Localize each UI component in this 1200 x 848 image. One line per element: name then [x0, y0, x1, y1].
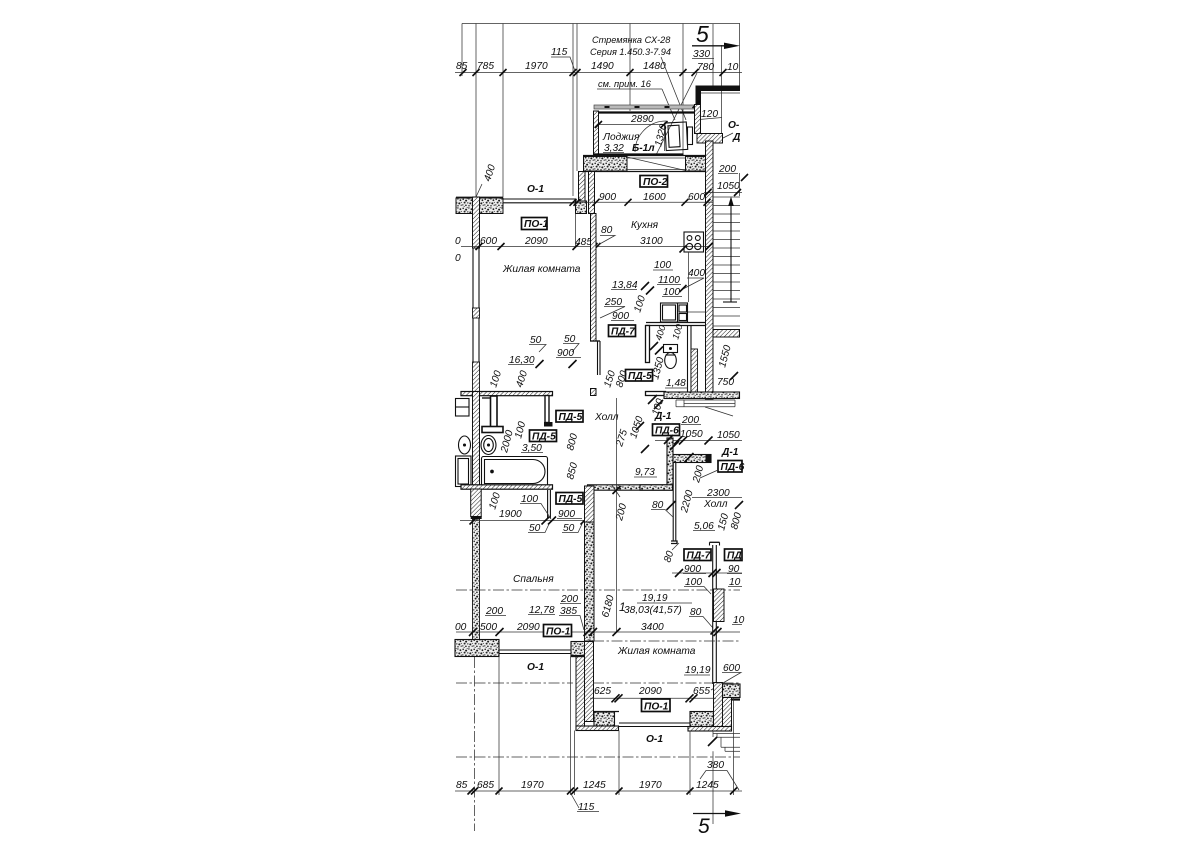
svg-text:ПД: ПД — [727, 551, 742, 562]
svg-text:625: 625 — [594, 686, 611, 697]
svg-text:1480: 1480 — [643, 61, 666, 72]
svg-text:ПД-5: ПД-5 — [559, 494, 583, 505]
svg-text:19,19: 19,19 — [685, 665, 711, 676]
svg-text:2090: 2090 — [524, 236, 548, 247]
svg-text:ПД-7: ПД-7 — [687, 551, 712, 562]
svg-text:100: 100 — [654, 260, 671, 271]
svg-text:Холл: Холл — [703, 499, 728, 510]
svg-text:19,19: 19,19 — [642, 593, 668, 604]
svg-text:ПО-2: ПО-2 — [643, 177, 668, 188]
svg-text:400: 400 — [688, 268, 705, 279]
svg-text:780: 780 — [697, 62, 714, 73]
svg-text:80: 80 — [601, 225, 613, 236]
svg-text:ПД-5: ПД-5 — [628, 371, 652, 382]
svg-text:ПО-1: ПО-1 — [644, 702, 669, 713]
svg-text:Серия 1.450.3-7.94: Серия 1.450.3-7.94 — [590, 47, 671, 57]
svg-text:5: 5 — [698, 815, 710, 838]
svg-text:О-1: О-1 — [527, 662, 544, 673]
svg-text:ПО-1: ПО-1 — [524, 219, 549, 230]
svg-text:1245: 1245 — [583, 780, 606, 791]
svg-text:Стремянка СХ-28: Стремянка СХ-28 — [592, 35, 671, 45]
svg-text:ПД-6: ПД-6 — [721, 462, 745, 473]
svg-text:1600: 1600 — [643, 192, 666, 203]
svg-text:1,48: 1,48 — [666, 378, 686, 389]
svg-text:2090: 2090 — [638, 686, 662, 697]
svg-text:1050: 1050 — [717, 430, 740, 441]
svg-text:Кухня: Кухня — [631, 220, 659, 231]
svg-text:0: 0 — [455, 236, 461, 247]
svg-text:0: 0 — [455, 253, 461, 264]
svg-text:115: 115 — [551, 47, 568, 58]
svg-text:ПД-7: ПД-7 — [611, 327, 636, 338]
svg-text:1490: 1490 — [591, 61, 614, 72]
svg-text:3100: 3100 — [640, 236, 663, 247]
svg-text:Жилая комната: Жилая комната — [617, 646, 696, 657]
svg-text:900: 900 — [599, 192, 616, 203]
svg-text:ПД-5: ПД-5 — [559, 412, 583, 423]
svg-text:1245: 1245 — [696, 780, 719, 791]
svg-text:1970: 1970 — [639, 780, 662, 791]
svg-text:2090: 2090 — [516, 622, 540, 633]
svg-text:10: 10 — [727, 62, 739, 73]
svg-text:00: 00 — [455, 622, 467, 633]
svg-text:1050: 1050 — [717, 181, 740, 192]
svg-text:Холл: Холл — [594, 412, 619, 423]
svg-text:485: 485 — [575, 237, 592, 248]
svg-text:О-1: О-1 — [527, 184, 544, 195]
svg-text:685: 685 — [477, 780, 494, 791]
svg-text:1970: 1970 — [521, 780, 544, 791]
svg-text:О-: О- — [728, 120, 740, 131]
svg-text:Д: Д — [732, 132, 741, 143]
svg-text:3400: 3400 — [641, 622, 664, 633]
svg-text:Жилая комната: Жилая комната — [502, 264, 581, 275]
svg-text:500: 500 — [480, 622, 497, 633]
svg-text:85: 85 — [456, 780, 468, 791]
svg-text:785: 785 — [477, 61, 494, 72]
svg-text:600: 600 — [688, 192, 705, 203]
svg-text:38,03(41,57): 38,03(41,57) — [624, 605, 682, 616]
svg-text:см. прим. 16: см. прим. 16 — [598, 79, 652, 89]
svg-text:Спальня: Спальня — [513, 574, 554, 585]
svg-text:1970: 1970 — [525, 61, 548, 72]
svg-text:ПО-1: ПО-1 — [546, 627, 571, 638]
svg-text:О-1: О-1 — [646, 734, 663, 745]
svg-text:ПД-5: ПД-5 — [532, 432, 556, 443]
svg-text:600: 600 — [480, 236, 497, 247]
svg-text:ПД-6: ПД-6 — [655, 426, 679, 437]
svg-text:Д-1: Д-1 — [721, 447, 739, 458]
svg-text:1050: 1050 — [680, 429, 703, 440]
svg-text:2890: 2890 — [630, 114, 654, 125]
svg-text:Лоджия: Лоджия — [602, 132, 640, 143]
svg-text:380: 380 — [707, 760, 724, 771]
svg-text:1900: 1900 — [499, 509, 522, 520]
svg-text:5: 5 — [696, 21, 709, 47]
svg-text:9,73: 9,73 — [635, 467, 655, 478]
